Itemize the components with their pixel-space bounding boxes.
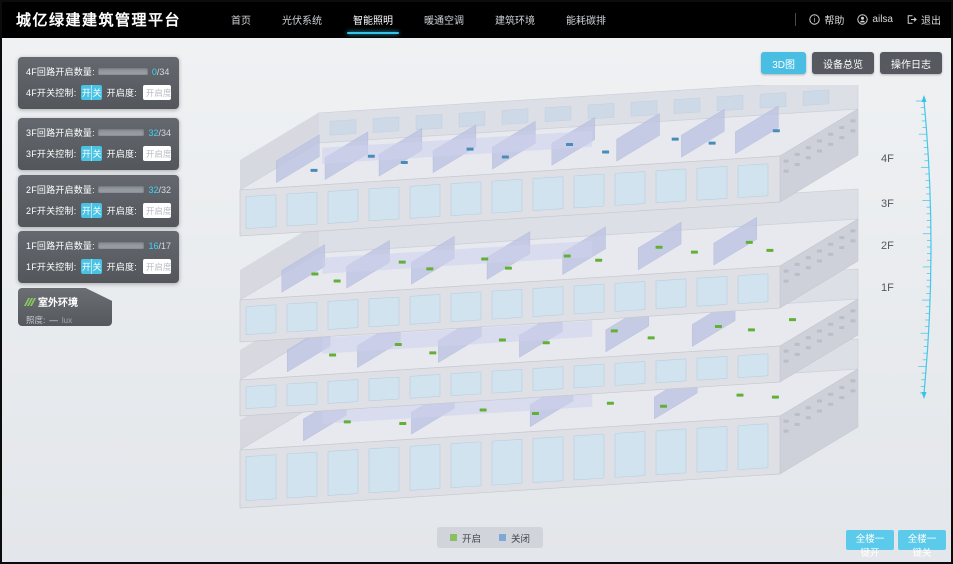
outdoor-panel-title: 室外环境	[38, 294, 78, 309]
circuit-on-count: 32	[148, 128, 158, 138]
switch-control-label: 2F开关控制:	[26, 204, 76, 217]
nav-item-hvac[interactable]: 暖通空调	[422, 8, 466, 31]
logout-link[interactable]: 退出	[906, 12, 941, 27]
openness-input-group: %	[143, 146, 171, 161]
top-bar: 城亿绿建建筑管理平台 首页 光伏系统 智能照明 暖通空调 建筑环境 能耗碳排 i…	[0, 0, 953, 38]
help-link[interactable]: i 帮助	[809, 12, 844, 27]
switch-on-button[interactable]: 开	[81, 203, 91, 218]
floor-marker-2f: 2F	[881, 240, 894, 252]
circuit-progress-bar	[98, 129, 145, 136]
nav-item-smart-lighting[interactable]: 智能照明	[351, 8, 395, 31]
switch-off-button[interactable]: 关	[91, 146, 101, 161]
openness-input-group: %	[143, 203, 171, 218]
floor-panel-1f: 1F回路开启数量: 16/17 1F开关控制: 开 关 开启度: %	[18, 231, 179, 283]
all-floors-off-button[interactable]: 全楼一键关	[898, 530, 946, 550]
building-model	[205, 85, 895, 525]
circuit-on-count: 16	[148, 241, 158, 251]
user-icon	[857, 14, 868, 25]
openness-input-group: %	[143, 85, 171, 100]
illuminance-label: 照度:	[26, 314, 45, 326]
header-divider	[795, 13, 796, 26]
openness-label: 开启度:	[107, 260, 137, 273]
user-account[interactable]: ailsa	[857, 14, 893, 25]
outdoor-environment-panel: 室外环境 照度: — lux	[18, 288, 112, 326]
circuit-total-count: /34	[158, 128, 171, 138]
all-floors-on-button[interactable]: 全楼一键开	[846, 530, 894, 550]
switch-button-group: 开 关	[81, 146, 101, 161]
circuit-total-count: /32	[158, 185, 171, 195]
on-swatch-icon	[450, 534, 457, 541]
illuminance-unit: lux	[62, 316, 72, 325]
floor-marker-1f: 1F	[881, 282, 894, 294]
switch-off-button[interactable]: 关	[91, 85, 101, 100]
illuminance-value: —	[49, 315, 58, 325]
circuit-count-label: 1F回路开启数量:	[26, 239, 95, 252]
switch-button-group: 开 关	[81, 259, 101, 274]
help-icon: i	[809, 14, 820, 25]
switch-button-group: 开 关	[81, 203, 101, 218]
switch-off-button[interactable]: 关	[91, 259, 101, 274]
switch-control-label: 4F开关控制:	[26, 86, 76, 99]
legend-item-off: 关闭	[499, 531, 530, 545]
openness-label: 开启度:	[107, 147, 137, 160]
openness-input[interactable]	[143, 146, 171, 161]
switch-off-button[interactable]: 关	[91, 203, 101, 218]
operation-log-button[interactable]: 操作日志	[880, 52, 942, 74]
floor-panel-3f: 3F回路开启数量: 32/34 3F开关控制: 开 关 开启度: %	[18, 118, 179, 170]
nav-item-energy-carbon[interactable]: 能耗碳排	[564, 8, 608, 31]
circuit-progress-bar	[98, 68, 148, 75]
logout-icon	[906, 14, 917, 25]
switch-control-label: 1F开关控制:	[26, 260, 76, 273]
openness-label: 开启度:	[107, 204, 137, 217]
circuit-count-label: 2F回路开启数量:	[26, 183, 95, 196]
openness-input[interactable]	[143, 259, 171, 274]
view-3d-button[interactable]: 3D图	[761, 52, 806, 74]
light-status-legend: 开启 关闭	[437, 527, 543, 548]
circuit-on-count: 32	[148, 185, 158, 195]
circuit-progress-bar	[98, 186, 145, 193]
bulk-control-buttons: 全楼一键开 全楼一键关	[846, 530, 946, 550]
switch-on-button[interactable]: 开	[81, 85, 91, 100]
header-utilities: i 帮助 ailsa 退出	[795, 12, 941, 27]
floor-marker-3f: 3F	[881, 198, 894, 210]
nav-item-home[interactable]: 首页	[229, 8, 253, 31]
legend-item-on: 开启	[450, 531, 481, 545]
off-swatch-icon	[499, 534, 506, 541]
circuit-progress-bar	[98, 242, 145, 249]
switch-on-button[interactable]: 开	[81, 146, 91, 161]
floor-marker-4f: 4F	[881, 153, 894, 165]
circuit-count-label: 4F回路开启数量:	[26, 65, 95, 78]
switch-control-label: 3F开关控制:	[26, 147, 76, 160]
legend-on-label: 开启	[462, 531, 481, 545]
view-toolbar: 3D图 设备总览 操作日志	[761, 52, 942, 74]
device-overview-button[interactable]: 设备总览	[812, 52, 874, 74]
floor-panel-4f: 4F回路开启数量: 0/34 4F开关控制: 开 关 开启度: %	[18, 57, 179, 109]
nav-item-building-env[interactable]: 建筑环境	[493, 8, 537, 31]
circuit-count-label: 3F回路开启数量:	[26, 126, 95, 139]
openness-label: 开启度:	[107, 86, 137, 99]
legend-off-label: 关闭	[511, 531, 530, 545]
building-3d-view[interactable]	[205, 85, 895, 525]
switch-on-button[interactable]: 开	[81, 259, 91, 274]
main-nav: 首页 光伏系统 智能照明 暖通空调 建筑环境 能耗碳排	[229, 8, 608, 31]
slashes-icon	[26, 298, 34, 306]
floor-panel-2f: 2F回路开启数量: 32/32 2F开关控制: 开 关 开启度: %	[18, 175, 179, 227]
openness-input-group: %	[143, 259, 171, 274]
nav-item-pv-system[interactable]: 光伏系统	[280, 8, 324, 31]
circuit-total-count: /17	[158, 241, 171, 251]
ruler-scale-icon	[906, 95, 946, 399]
switch-button-group: 开 关	[81, 85, 101, 100]
circuit-total-count: /34	[157, 67, 170, 77]
svg-text:i: i	[814, 17, 816, 24]
floor-level-slider[interactable]	[906, 95, 946, 399]
openness-input[interactable]	[143, 85, 171, 100]
app-title: 城亿绿建建筑管理平台	[16, 9, 181, 30]
openness-input[interactable]	[143, 203, 171, 218]
username: ailsa	[872, 14, 893, 25]
